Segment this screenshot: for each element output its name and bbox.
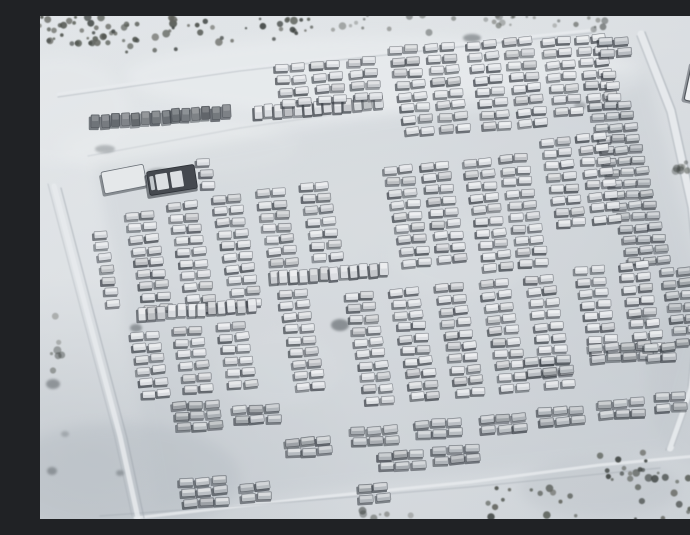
vehicle-roof-glint bbox=[370, 437, 382, 441]
vehicle bbox=[177, 478, 194, 488]
vehicle bbox=[508, 213, 524, 223]
vehicle bbox=[396, 93, 412, 104]
vehicle-roof-glint bbox=[310, 269, 317, 275]
tree bbox=[676, 501, 683, 508]
vehicle-roof-glint bbox=[449, 428, 461, 432]
tree bbox=[111, 29, 115, 33]
vehicle-roof-glint bbox=[473, 388, 484, 391]
vehicle-roof-glint bbox=[352, 428, 364, 432]
vehicle-roof-glint bbox=[278, 76, 289, 79]
vehicle bbox=[517, 176, 532, 186]
vehicle bbox=[548, 321, 564, 331]
vehicle-roof-glint bbox=[540, 347, 551, 351]
tree bbox=[172, 26, 175, 29]
vehicle bbox=[659, 267, 675, 277]
vehicle bbox=[395, 81, 411, 91]
vehicle-roof-glint bbox=[169, 305, 176, 311]
vehicle bbox=[623, 247, 639, 257]
vehicle-roof-glint bbox=[238, 345, 249, 349]
vehicle bbox=[245, 286, 261, 296]
vehicle-roof-glint bbox=[495, 351, 506, 354]
tree bbox=[661, 516, 666, 519]
tree bbox=[605, 468, 610, 473]
vehicle bbox=[423, 185, 439, 195]
vehicle bbox=[150, 270, 165, 280]
tree bbox=[286, 17, 290, 21]
vehicle-roof-glint bbox=[198, 159, 209, 162]
vehicle bbox=[275, 75, 291, 85]
tree bbox=[80, 28, 85, 33]
vehicle-roof-glint bbox=[588, 181, 599, 184]
vehicle bbox=[104, 299, 120, 309]
vehicle-roof-glint bbox=[507, 326, 518, 330]
vehicle bbox=[515, 108, 531, 119]
vehicle-roof-glint bbox=[583, 158, 594, 161]
vehicle-roof-glint bbox=[617, 410, 629, 414]
vehicle-roof-glint bbox=[638, 180, 649, 183]
vehicle-roof-glint bbox=[180, 479, 192, 483]
vehicle bbox=[429, 418, 446, 429]
vehicle bbox=[612, 37, 629, 48]
vehicle bbox=[644, 318, 660, 329]
vehicle-roof-glint bbox=[477, 230, 488, 233]
vehicle-roof-glint bbox=[536, 259, 547, 262]
vehicle bbox=[486, 326, 502, 337]
vehicle-roof-glint bbox=[304, 195, 315, 198]
vehicle bbox=[175, 303, 186, 319]
vehicle-roof-glint bbox=[545, 151, 556, 155]
vehicle bbox=[415, 345, 431, 355]
vehicle bbox=[397, 335, 413, 346]
vehicle bbox=[196, 373, 211, 383]
vehicle bbox=[669, 392, 686, 402]
vehicle bbox=[153, 280, 169, 290]
vehicle bbox=[392, 69, 407, 79]
vehicle bbox=[386, 189, 402, 200]
vehicle bbox=[210, 106, 221, 122]
vehicle-roof-glint bbox=[548, 310, 559, 313]
vehicle bbox=[479, 111, 495, 121]
vehicle bbox=[486, 203, 502, 213]
vehicle-roof-glint bbox=[483, 112, 494, 115]
vehicle-roof-glint bbox=[327, 61, 338, 64]
vehicle bbox=[194, 158, 210, 168]
vehicle bbox=[436, 295, 452, 306]
vehicle bbox=[483, 51, 499, 62]
vehicle bbox=[211, 195, 227, 205]
vehicle bbox=[508, 72, 524, 83]
vehicle bbox=[444, 64, 460, 75]
vehicle bbox=[399, 103, 415, 113]
vehicle-roof-glint bbox=[500, 374, 511, 378]
vehicle-roof-glint bbox=[621, 226, 632, 229]
tree bbox=[530, 488, 533, 491]
vehicle-formation-cl-sw-1 bbox=[170, 400, 224, 433]
vehicle bbox=[283, 257, 299, 268]
vehicle bbox=[597, 410, 614, 422]
vehicle bbox=[629, 409, 645, 419]
vehicle-roof-glint bbox=[478, 89, 489, 93]
vehicle bbox=[171, 327, 187, 337]
vehicle bbox=[365, 80, 381, 90]
vehicle bbox=[281, 245, 297, 255]
vehicle bbox=[474, 230, 490, 240]
vehicle bbox=[314, 84, 330, 95]
vehicle-roof-glint bbox=[174, 328, 185, 331]
tree bbox=[279, 27, 283, 31]
vehicle-roof-glint bbox=[326, 230, 337, 233]
tree bbox=[426, 29, 433, 36]
vehicle bbox=[307, 268, 319, 284]
vehicle bbox=[261, 224, 276, 234]
vehicle-roof-glint bbox=[521, 260, 532, 263]
vehicle bbox=[561, 71, 576, 81]
vehicle bbox=[349, 81, 365, 91]
vehicle bbox=[385, 177, 401, 187]
vehicle bbox=[457, 330, 473, 340]
tree bbox=[492, 20, 497, 25]
vehicle bbox=[192, 259, 208, 269]
vehicle-roof-glint bbox=[102, 115, 109, 121]
vehicle bbox=[324, 60, 339, 70]
vehicle bbox=[398, 247, 414, 258]
vehicle bbox=[626, 200, 642, 211]
tree bbox=[644, 459, 647, 462]
vehicle bbox=[139, 111, 150, 127]
vehicle-roof-glint bbox=[653, 235, 664, 238]
vehicle bbox=[193, 477, 210, 488]
tree bbox=[671, 489, 678, 496]
vehicle-roof-glint bbox=[622, 343, 634, 347]
vehicle-roof-glint bbox=[394, 301, 405, 305]
vehicle-roof-glint bbox=[350, 266, 357, 272]
vehicle bbox=[443, 208, 459, 218]
dark-patch bbox=[95, 145, 115, 153]
vehicle bbox=[619, 342, 636, 353]
vehicle-roof-glint bbox=[416, 334, 427, 337]
tree bbox=[259, 18, 262, 21]
vehicle bbox=[396, 322, 412, 332]
vehicle bbox=[538, 356, 555, 367]
vehicle-roof-glint bbox=[631, 320, 642, 323]
vehicle bbox=[360, 302, 376, 312]
vehicle bbox=[320, 216, 336, 227]
vehicle-roof-glint bbox=[605, 102, 616, 105]
vehicle bbox=[103, 288, 119, 298]
vehicle bbox=[481, 263, 497, 274]
vehicle bbox=[233, 416, 249, 426]
vehicle bbox=[154, 306, 166, 322]
vehicle-roof-glint bbox=[410, 69, 421, 72]
vehicle bbox=[348, 427, 365, 437]
vehicle bbox=[419, 162, 435, 173]
vehicle-roof-glint bbox=[515, 154, 526, 157]
vehicle bbox=[166, 304, 177, 319]
tree-cluster bbox=[419, 16, 560, 36]
vehicle bbox=[217, 231, 232, 241]
vehicle bbox=[400, 115, 416, 126]
vehicle-roof-glint bbox=[433, 222, 444, 225]
vehicle bbox=[221, 253, 237, 264]
vehicle bbox=[363, 315, 379, 325]
vehicle bbox=[618, 262, 634, 273]
vehicle bbox=[521, 200, 537, 211]
tree bbox=[299, 18, 303, 22]
tree bbox=[408, 512, 414, 518]
vehicle bbox=[139, 211, 155, 221]
vehicle bbox=[668, 314, 684, 325]
vehicle bbox=[527, 223, 543, 233]
vehicle-roof-glint bbox=[288, 449, 300, 453]
vehicle bbox=[486, 63, 502, 73]
vehicle bbox=[620, 352, 637, 363]
vehicle bbox=[591, 132, 607, 143]
vehicle-roof-glint bbox=[189, 304, 196, 310]
vehicle bbox=[195, 270, 211, 280]
vehicle-roof-glint bbox=[280, 271, 287, 277]
vehicle-roof-glint bbox=[622, 169, 633, 172]
vehicle bbox=[545, 73, 561, 84]
vehicle bbox=[462, 159, 478, 170]
vehicle bbox=[628, 319, 644, 329]
vehicle bbox=[277, 290, 293, 300]
tree bbox=[174, 47, 178, 51]
vehicle bbox=[581, 70, 597, 81]
vehicle bbox=[415, 103, 430, 113]
vehicle-roof-glint bbox=[564, 72, 575, 75]
tree bbox=[122, 39, 125, 42]
vehicle bbox=[265, 415, 281, 425]
vehicle bbox=[542, 150, 558, 160]
tree bbox=[339, 22, 347, 30]
vehicle bbox=[663, 291, 679, 302]
vehicle-roof-glint bbox=[194, 350, 205, 353]
vehicle bbox=[544, 61, 560, 72]
vehicle bbox=[483, 192, 499, 203]
vehicle bbox=[478, 415, 495, 426]
vehicle bbox=[544, 161, 559, 171]
tree bbox=[638, 467, 643, 472]
vehicle bbox=[225, 369, 240, 379]
vehicle-roof-glint bbox=[524, 62, 535, 65]
tree bbox=[125, 51, 128, 54]
vehicle bbox=[526, 287, 542, 298]
tree bbox=[601, 17, 608, 24]
vehicle bbox=[373, 360, 389, 371]
vehicle bbox=[100, 277, 116, 287]
vehicle-roof-glint bbox=[379, 453, 391, 456]
tree bbox=[132, 37, 138, 43]
vehicle bbox=[404, 57, 420, 67]
vehicle-roof-glint bbox=[426, 186, 437, 190]
vehicle bbox=[567, 406, 584, 417]
vehicle bbox=[241, 275, 257, 285]
vehicle bbox=[478, 241, 494, 251]
vehicle-roof-glint bbox=[445, 55, 456, 59]
tree bbox=[354, 21, 358, 25]
vehicle bbox=[589, 265, 605, 275]
tree bbox=[295, 31, 299, 35]
tree bbox=[105, 24, 111, 30]
vehicle bbox=[346, 304, 362, 314]
vehicle bbox=[155, 292, 171, 302]
vehicle bbox=[381, 424, 398, 436]
vehicle bbox=[367, 92, 383, 102]
vehicle-roof-glint bbox=[312, 243, 323, 246]
vehicle bbox=[480, 253, 496, 263]
vehicle-roof-glint bbox=[631, 398, 643, 402]
vehicle bbox=[391, 212, 407, 223]
vehicle-roof-glint bbox=[291, 349, 302, 352]
vehicle bbox=[387, 46, 403, 56]
vehicle bbox=[522, 357, 539, 368]
vehicle-roof-glint bbox=[609, 94, 620, 97]
vehicle bbox=[591, 216, 607, 227]
vehicle bbox=[230, 405, 247, 416]
vehicle-roof-glint bbox=[331, 72, 342, 75]
vehicle bbox=[626, 308, 642, 319]
vehicle bbox=[501, 178, 516, 188]
vehicle bbox=[413, 333, 429, 343]
vehicle bbox=[220, 104, 231, 120]
vehicle-roof-glint bbox=[590, 337, 601, 340]
vehicle bbox=[550, 196, 566, 207]
vehicle-roof-glint bbox=[578, 279, 589, 283]
vehicle bbox=[650, 234, 665, 243]
vehicle-roof-glint bbox=[604, 72, 615, 75]
vehicle bbox=[175, 248, 191, 258]
vehicle bbox=[230, 218, 245, 228]
vehicle-roof-glint bbox=[539, 408, 551, 412]
vehicle bbox=[361, 384, 377, 394]
tree bbox=[40, 16, 44, 19]
vehicle bbox=[329, 84, 344, 94]
tree-cluster bbox=[50, 313, 65, 374]
vehicle bbox=[186, 224, 202, 234]
tree bbox=[60, 33, 64, 37]
vehicle-roof-glint bbox=[594, 278, 605, 281]
vehicle-roof-glint bbox=[238, 301, 245, 307]
tree bbox=[349, 24, 352, 27]
vehicle bbox=[573, 267, 588, 277]
vehicle bbox=[638, 189, 654, 200]
vehicle-roof-glint bbox=[557, 209, 568, 213]
vehicle bbox=[556, 48, 572, 58]
tree bbox=[483, 17, 488, 22]
vehicle bbox=[405, 199, 420, 209]
vehicle-roof-glint bbox=[559, 148, 570, 152]
vehicle-roof-glint bbox=[255, 107, 262, 113]
vehicle bbox=[490, 338, 506, 348]
vehicle bbox=[229, 288, 245, 298]
vehicle-roof-glint bbox=[450, 446, 462, 449]
tree bbox=[559, 500, 563, 504]
vehicle bbox=[411, 234, 427, 244]
vehicle bbox=[177, 362, 193, 372]
vehicle bbox=[619, 273, 635, 283]
vehicle-roof-glint bbox=[522, 50, 533, 53]
vehicle bbox=[212, 206, 228, 216]
vehicle bbox=[367, 337, 383, 348]
tree bbox=[51, 28, 57, 34]
vehicle-roof-glint bbox=[407, 57, 418, 60]
vehicle bbox=[515, 166, 530, 176]
vehicle bbox=[611, 399, 628, 410]
vehicle bbox=[475, 88, 491, 98]
vehicle bbox=[582, 169, 598, 180]
vehicle bbox=[674, 338, 690, 348]
vehicle-roof-glint bbox=[492, 88, 503, 91]
tree bbox=[550, 489, 556, 495]
vehicle bbox=[671, 326, 687, 336]
vehicle bbox=[285, 448, 302, 458]
vehicle bbox=[622, 179, 638, 189]
vehicle-roof-glint bbox=[418, 346, 429, 349]
vehicle bbox=[602, 342, 619, 354]
vehicle bbox=[452, 377, 468, 388]
vehicle bbox=[565, 94, 581, 104]
vehicle-roof-glint bbox=[220, 232, 231, 235]
vehicle bbox=[523, 276, 538, 286]
vehicle-roof-glint bbox=[664, 281, 675, 285]
vehicle-roof-glint bbox=[185, 386, 196, 389]
vehicle-roof-glint bbox=[259, 493, 271, 496]
vehicle-roof-glint bbox=[153, 112, 160, 118]
vehicle bbox=[545, 173, 561, 183]
vehicle bbox=[180, 374, 196, 384]
tree bbox=[639, 498, 645, 504]
vehicle bbox=[389, 201, 405, 212]
vehicle bbox=[211, 485, 228, 497]
vehicle bbox=[570, 217, 586, 227]
vehicle bbox=[647, 222, 663, 232]
tree bbox=[451, 16, 456, 21]
vehicle bbox=[191, 349, 206, 359]
tree bbox=[611, 478, 614, 481]
tree bbox=[597, 453, 603, 459]
vehicle-roof-glint bbox=[276, 65, 287, 68]
vehicle bbox=[195, 303, 206, 318]
vehicle bbox=[204, 410, 221, 421]
tree bbox=[685, 475, 690, 482]
vehicle-roof-glint bbox=[139, 308, 146, 314]
vehicle bbox=[407, 381, 423, 392]
vehicle-roof-glint bbox=[481, 242, 492, 245]
tree bbox=[359, 510, 367, 518]
vehicle-roof-glint bbox=[504, 179, 515, 182]
tree bbox=[526, 16, 529, 18]
vehicle-roof-glint bbox=[435, 458, 447, 462]
vehicle bbox=[309, 242, 324, 252]
vehicle-roof-glint bbox=[410, 451, 422, 454]
vehicle bbox=[191, 246, 207, 257]
vehicle bbox=[425, 197, 441, 208]
vehicle bbox=[256, 201, 272, 211]
vehicle-roof-glint bbox=[576, 268, 587, 271]
vehicle-roof-glint bbox=[388, 178, 399, 181]
vehicle bbox=[537, 418, 554, 429]
vehicle bbox=[400, 176, 416, 186]
vehicle-roof-glint bbox=[633, 213, 644, 216]
vehicle-roof-glint bbox=[284, 246, 295, 250]
vehicle bbox=[647, 330, 663, 341]
vehicle-roof-glint bbox=[514, 226, 525, 229]
vehicle bbox=[412, 420, 429, 431]
tree-cluster bbox=[94, 22, 178, 54]
vehicle bbox=[146, 246, 162, 257]
vehicle-roof-glint bbox=[334, 96, 345, 99]
vehicle-roof-glint bbox=[148, 308, 155, 314]
